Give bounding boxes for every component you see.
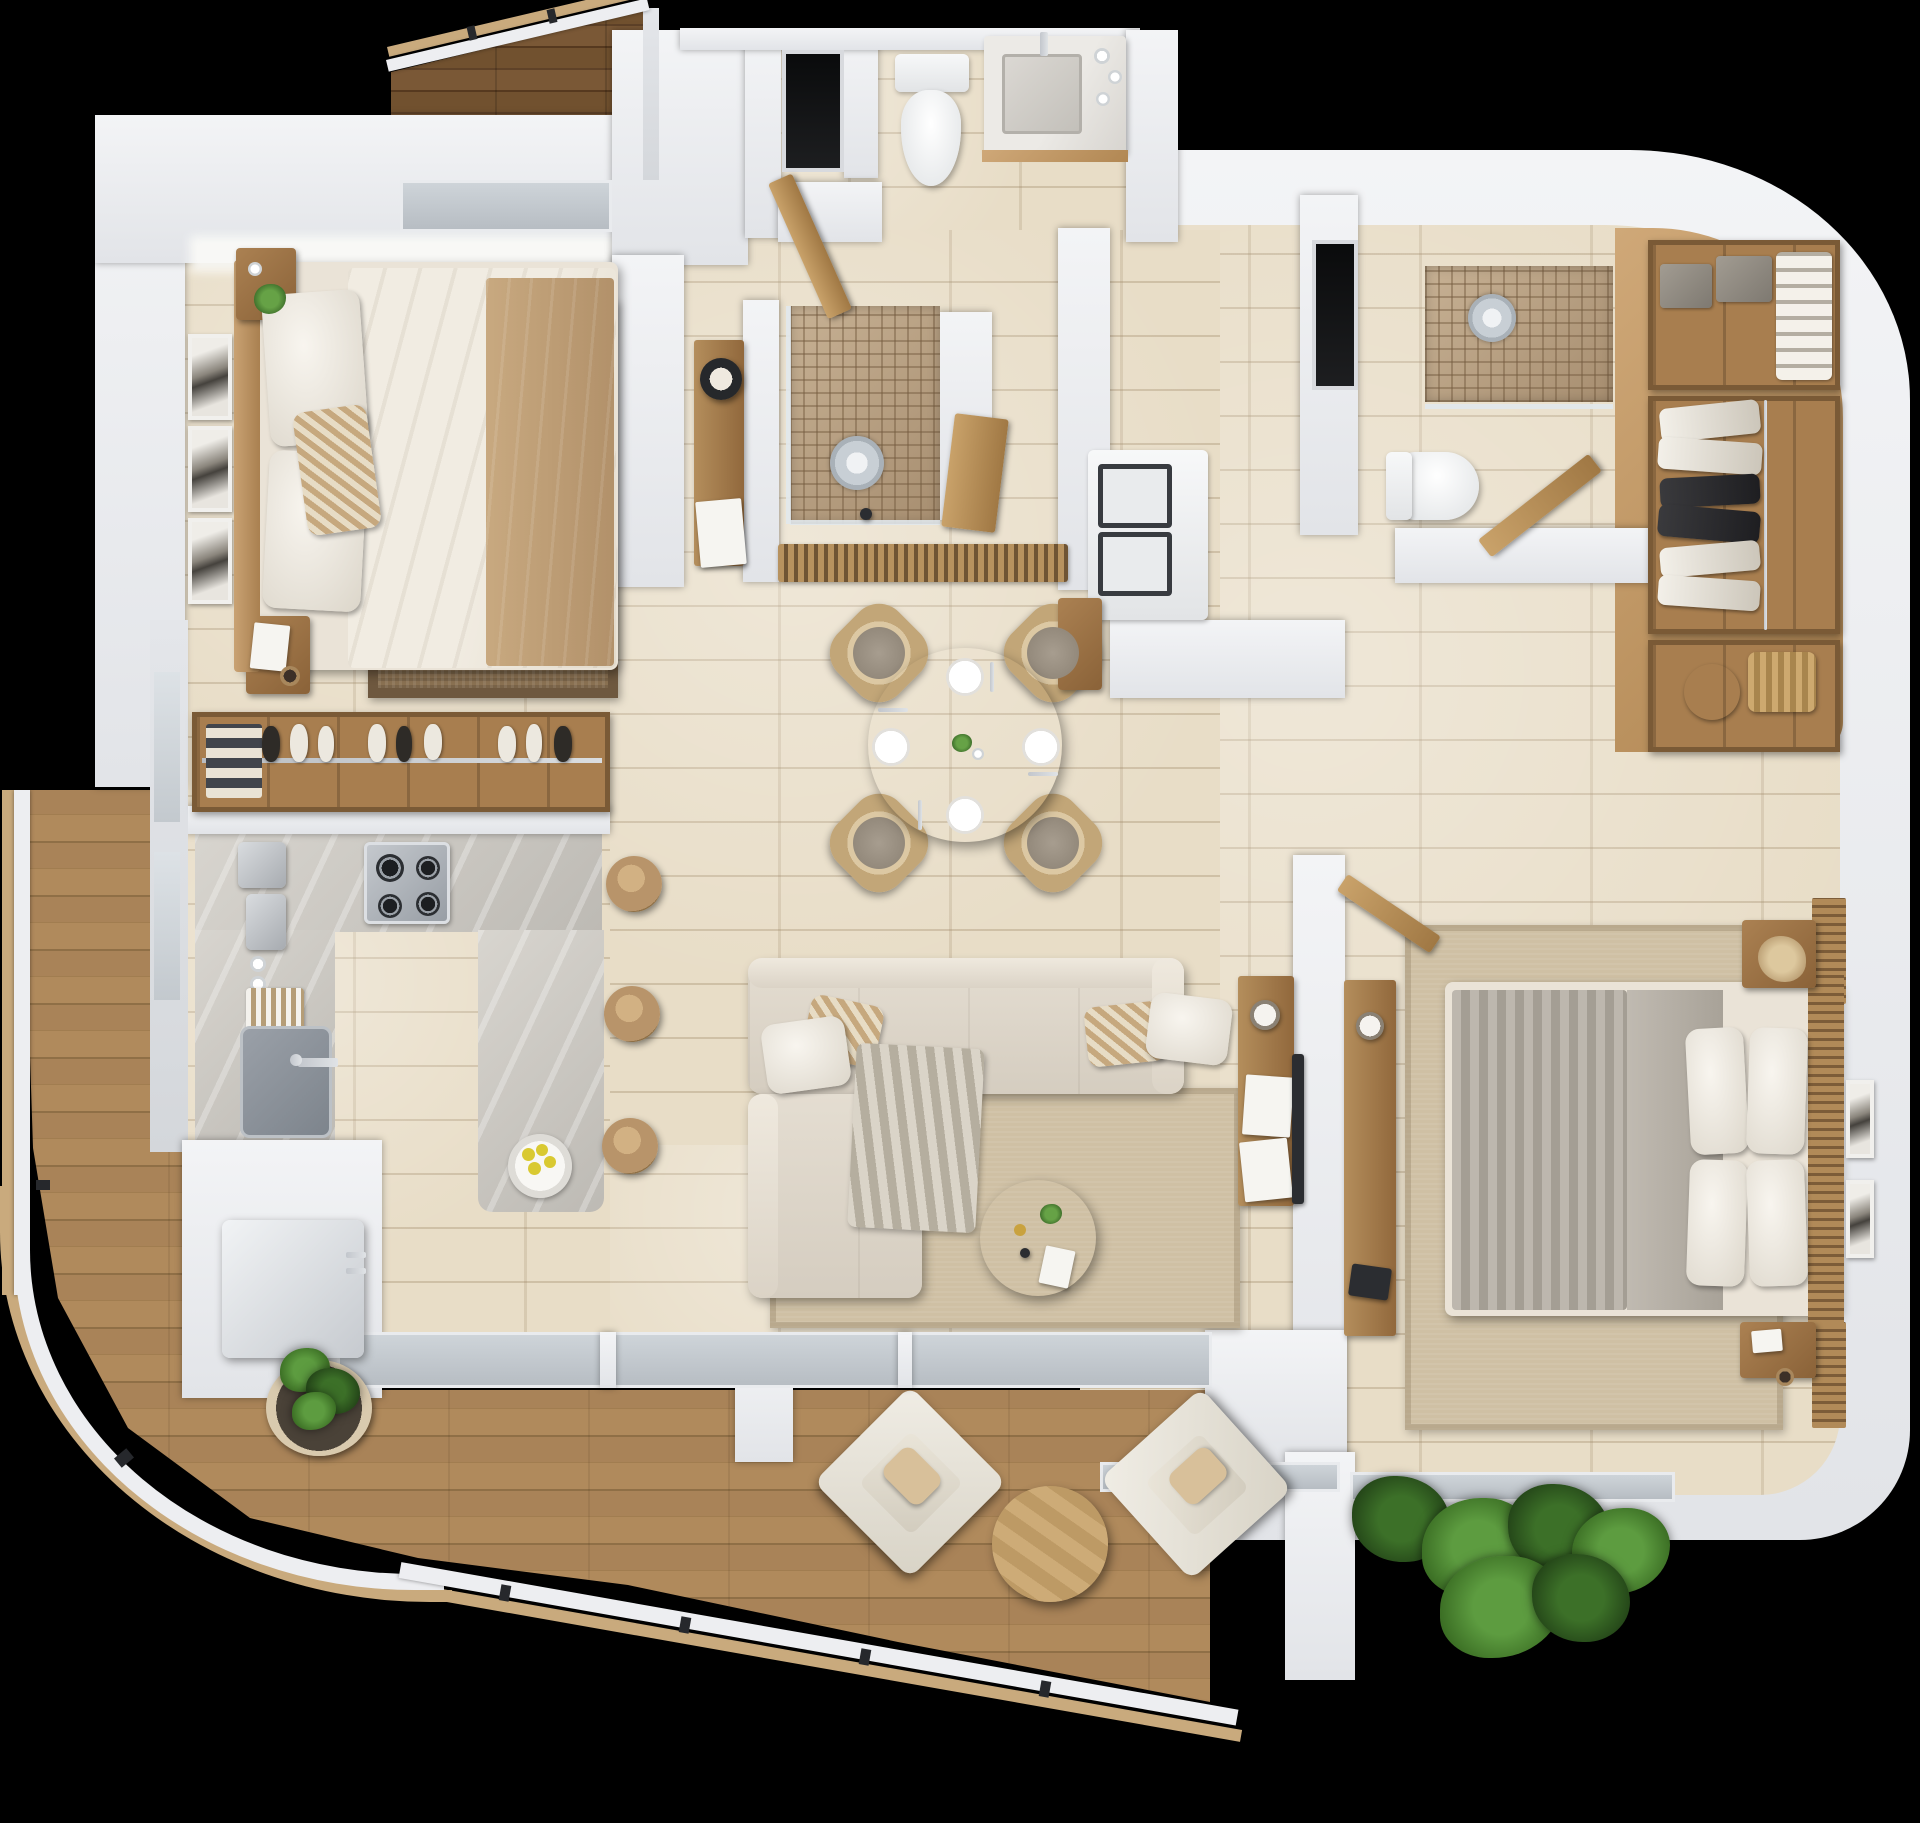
shower1-glass <box>790 520 940 525</box>
kitchen-sink <box>240 1026 332 1138</box>
fridge-handle <box>346 1252 366 1258</box>
shower1-head <box>830 436 884 490</box>
cutlery <box>918 800 922 830</box>
slat-screen-dining <box>778 544 1068 582</box>
sink-square <box>1098 464 1172 528</box>
rail-post <box>679 1616 692 1633</box>
place-plate <box>946 658 984 696</box>
sink-square <box>1098 532 1172 596</box>
wall-art <box>1846 1180 1874 1258</box>
storage-bin <box>1716 256 1772 302</box>
sofa-pillow <box>760 1014 853 1095</box>
wall-art <box>1846 1080 1874 1158</box>
bar-stool <box>602 1118 658 1174</box>
toaster <box>246 894 286 950</box>
balcony1-door-glass <box>400 180 612 232</box>
storage-bin <box>1660 264 1712 308</box>
folded-clothes <box>1776 252 1832 380</box>
wall-tv <box>1292 1054 1304 1204</box>
cup <box>280 666 300 686</box>
bedroom2-headboard <box>1808 972 1844 1326</box>
bedroom2-pillow <box>1746 1159 1808 1287</box>
sofa-chaise-edge <box>748 1094 778 1298</box>
wall-entry-block <box>612 30 748 265</box>
glass-mullion-2 <box>898 1332 912 1388</box>
burner <box>376 854 404 882</box>
toiletry <box>1094 48 1110 64</box>
desk-lamp <box>1356 1012 1384 1040</box>
sofa-pillow <box>1144 991 1233 1067</box>
hat-box <box>1684 664 1740 720</box>
fridge-handle <box>346 1268 366 1274</box>
table-centerpiece <box>972 748 984 760</box>
lemon <box>544 1156 556 1168</box>
lemon <box>522 1148 535 1161</box>
table-dot <box>1020 1248 1030 1258</box>
living-south-glass <box>337 1332 1212 1388</box>
vanity-sink <box>1002 54 1082 134</box>
shoe <box>498 726 516 762</box>
wall-bedroom1-east <box>612 255 684 587</box>
jar <box>250 956 266 972</box>
floor-plan-render <box>0 0 1920 1823</box>
hall-stool <box>700 358 742 400</box>
lemon <box>528 1162 541 1175</box>
console-magazine <box>1242 1074 1294 1137</box>
window-glass-kitchen-2 <box>154 852 180 1000</box>
wall-art <box>188 426 232 512</box>
bedroom2-pillow <box>1746 1027 1808 1155</box>
faucet <box>1040 32 1048 56</box>
wall-art <box>188 518 232 604</box>
place-plate <box>1022 728 1060 766</box>
bar-stool <box>606 856 662 912</box>
place-plate <box>872 728 910 766</box>
wall-entry-jamb-right <box>844 30 878 178</box>
burner <box>416 892 440 916</box>
towel-stack <box>206 724 262 798</box>
window-glass-kitchen-1 <box>154 672 180 822</box>
wall-bath1-west <box>743 300 779 582</box>
bedroom2-pillow <box>1685 1027 1750 1156</box>
shoe <box>262 726 280 762</box>
sofa-backrest <box>748 958 1184 988</box>
closet-rod <box>1764 400 1767 630</box>
vanity-ledge <box>982 150 1128 162</box>
balcony-side-wall <box>643 8 659 180</box>
table-dot-gold <box>1014 1224 1026 1236</box>
bedroom1-headboard <box>234 260 260 672</box>
book <box>250 622 291 672</box>
cup <box>248 262 262 276</box>
bedroom2-blanket-rib <box>1452 990 1627 1310</box>
garment <box>1659 473 1760 508</box>
bedroom1-throw <box>486 278 614 666</box>
entry-doorway <box>782 50 844 172</box>
shoe <box>526 724 542 762</box>
shoe <box>396 726 412 762</box>
rail-post <box>36 1180 50 1190</box>
shoe <box>318 726 334 762</box>
hall-magazine <box>695 498 747 568</box>
rail-post <box>859 1648 872 1665</box>
wall-art <box>188 334 232 420</box>
bar-stool <box>604 986 660 1042</box>
shower1-drain <box>860 508 872 520</box>
laptop <box>1348 1263 1392 1300</box>
toilet-2-tank <box>1386 452 1412 520</box>
toilet-tank <box>895 54 969 92</box>
card <box>1751 1329 1783 1354</box>
cutlery <box>878 708 908 712</box>
bedroom2-pillow <box>1686 1159 1748 1287</box>
faucet-knob <box>290 1054 302 1066</box>
sofa-throw <box>847 1043 984 1233</box>
console-lamp <box>1250 1000 1280 1030</box>
shower2-glass <box>1425 404 1613 409</box>
rail-post <box>499 1584 512 1601</box>
burner <box>416 856 440 880</box>
shoe <box>290 724 308 762</box>
place-plate <box>946 796 984 834</box>
shower1-glass <box>786 306 791 524</box>
kitchen-faucet <box>298 1058 338 1067</box>
wall-bath2-bedroom2 <box>1395 528 1657 583</box>
fridge <box>222 1220 364 1358</box>
shower2-mosaic <box>1425 266 1613 402</box>
cutlery <box>990 662 994 692</box>
toiletry <box>1096 92 1110 106</box>
shoe <box>368 724 386 762</box>
toiletry <box>1108 70 1122 84</box>
deck-side-table <box>992 1486 1108 1602</box>
shoe <box>424 724 442 760</box>
wall-hall-bath2 <box>1110 620 1345 698</box>
burner <box>378 894 402 918</box>
console-magazine <box>1239 1138 1293 1203</box>
bath2-doorway <box>1312 240 1358 390</box>
slat-panel <box>1812 1322 1846 1428</box>
wall-bath1-east <box>1126 30 1178 242</box>
cup <box>1776 1368 1794 1386</box>
glass-mullion-1 <box>600 1332 616 1388</box>
shoe <box>554 726 572 762</box>
lemon <box>536 1144 548 1156</box>
shower2-head <box>1468 294 1516 342</box>
coffee-machine <box>238 842 286 888</box>
basket <box>1748 652 1816 712</box>
wall-entry-jamb-left <box>745 30 781 238</box>
shower1-mosaic <box>790 306 940 524</box>
cutlery <box>1028 772 1058 776</box>
